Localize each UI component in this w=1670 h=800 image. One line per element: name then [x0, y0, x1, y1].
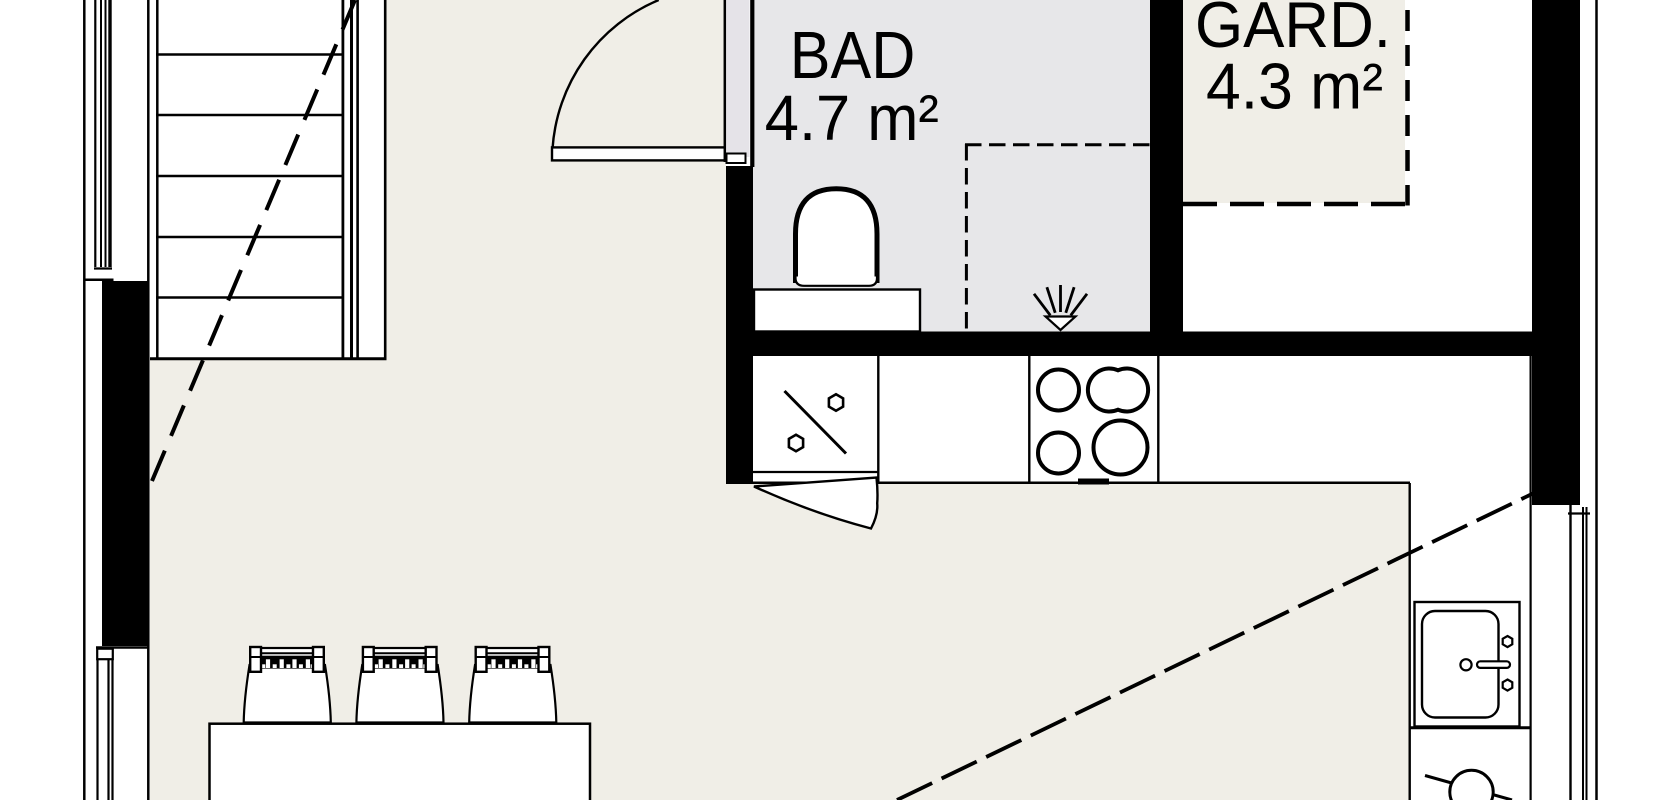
- svg-text:4.3 m²: 4.3 m²: [1206, 51, 1383, 123]
- svg-text:4.7 m²: 4.7 m²: [765, 82, 939, 154]
